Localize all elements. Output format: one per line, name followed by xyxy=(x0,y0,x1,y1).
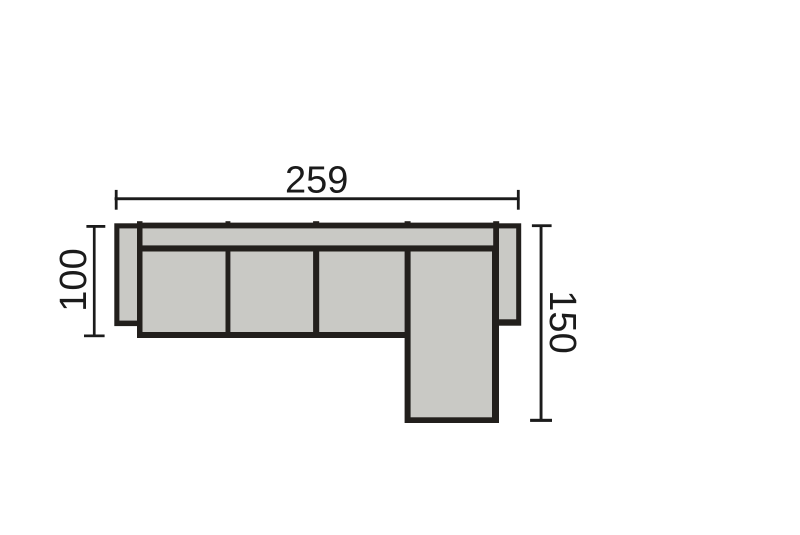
svg-text:100: 100 xyxy=(53,248,95,311)
svg-text:259: 259 xyxy=(285,160,348,202)
svg-text:150: 150 xyxy=(541,290,583,353)
